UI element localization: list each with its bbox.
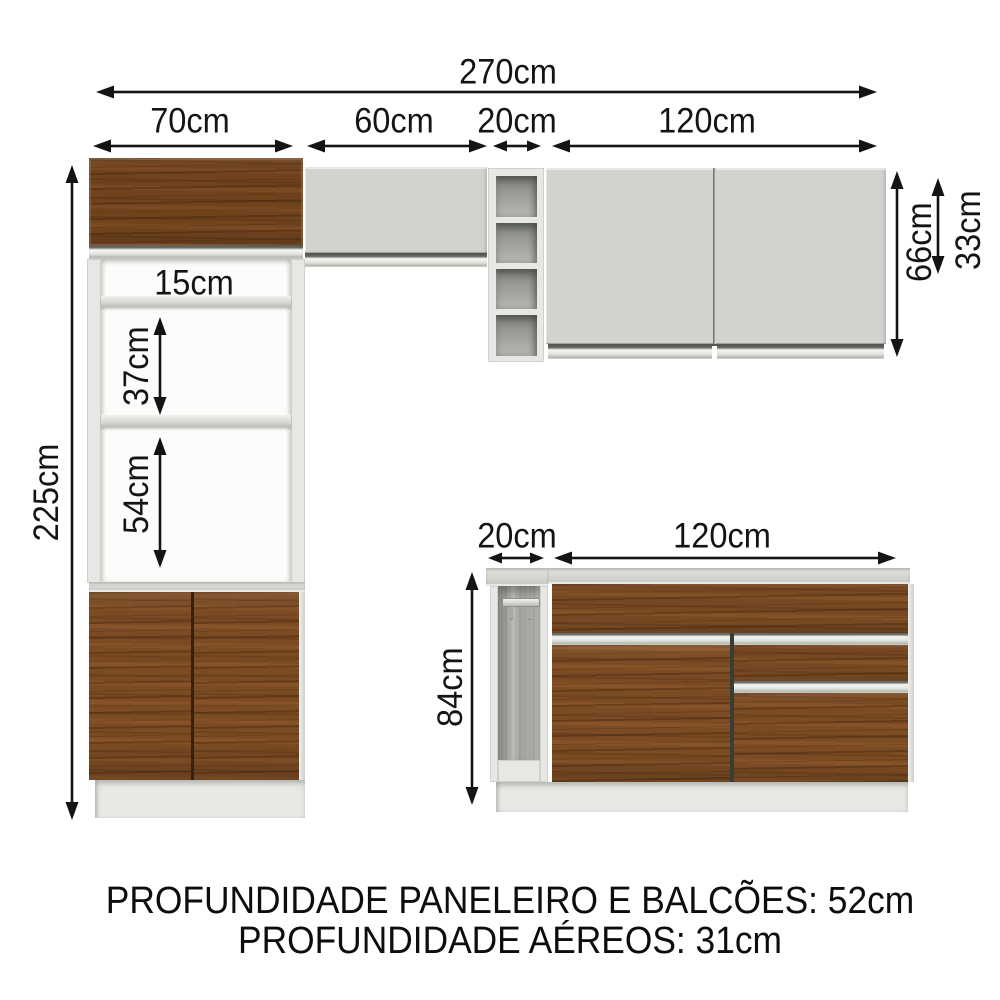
dim-label-84cm: 84cm — [428, 602, 472, 772]
dim-label-total-height: 225cm — [24, 407, 68, 577]
dim-label-120cm-base: 120cm — [669, 519, 774, 554]
arrow-120cm-upper — [552, 140, 877, 153]
dim-label-20cm-base: 20cm — [474, 519, 560, 554]
dim-label-15cm: 15cm — [151, 266, 237, 301]
dim-label-total-width: 270cm — [455, 55, 560, 90]
arrow-70cm — [93, 140, 293, 153]
dim-label-20cm-upper: 20cm — [474, 104, 560, 139]
footer-depth-line-2: PROFUNDIDADE AÉREOS: 31cm — [218, 922, 803, 960]
footer-depth-line-1: PROFUNDIDADE PANELEIRO E BALCÕES: 52cm — [75, 882, 944, 920]
dim-label-54cm: 54cm — [114, 409, 158, 579]
arrow-20cm-upper — [493, 141, 541, 152]
dim-label-70cm: 70cm — [147, 104, 233, 139]
dim-label-33cm: 33cm — [946, 145, 990, 315]
arrow-60cm — [307, 140, 487, 153]
dim-label-60cm: 60cm — [351, 104, 437, 139]
dim-label-120cm-upper: 120cm — [654, 104, 759, 139]
kitchen-dimensions-diagram: 270cm 70cm 60cm 20cm 120cm 15cm 20cm 120… — [0, 0, 1000, 1000]
dim-label-66cm: 66cm — [897, 157, 941, 327]
